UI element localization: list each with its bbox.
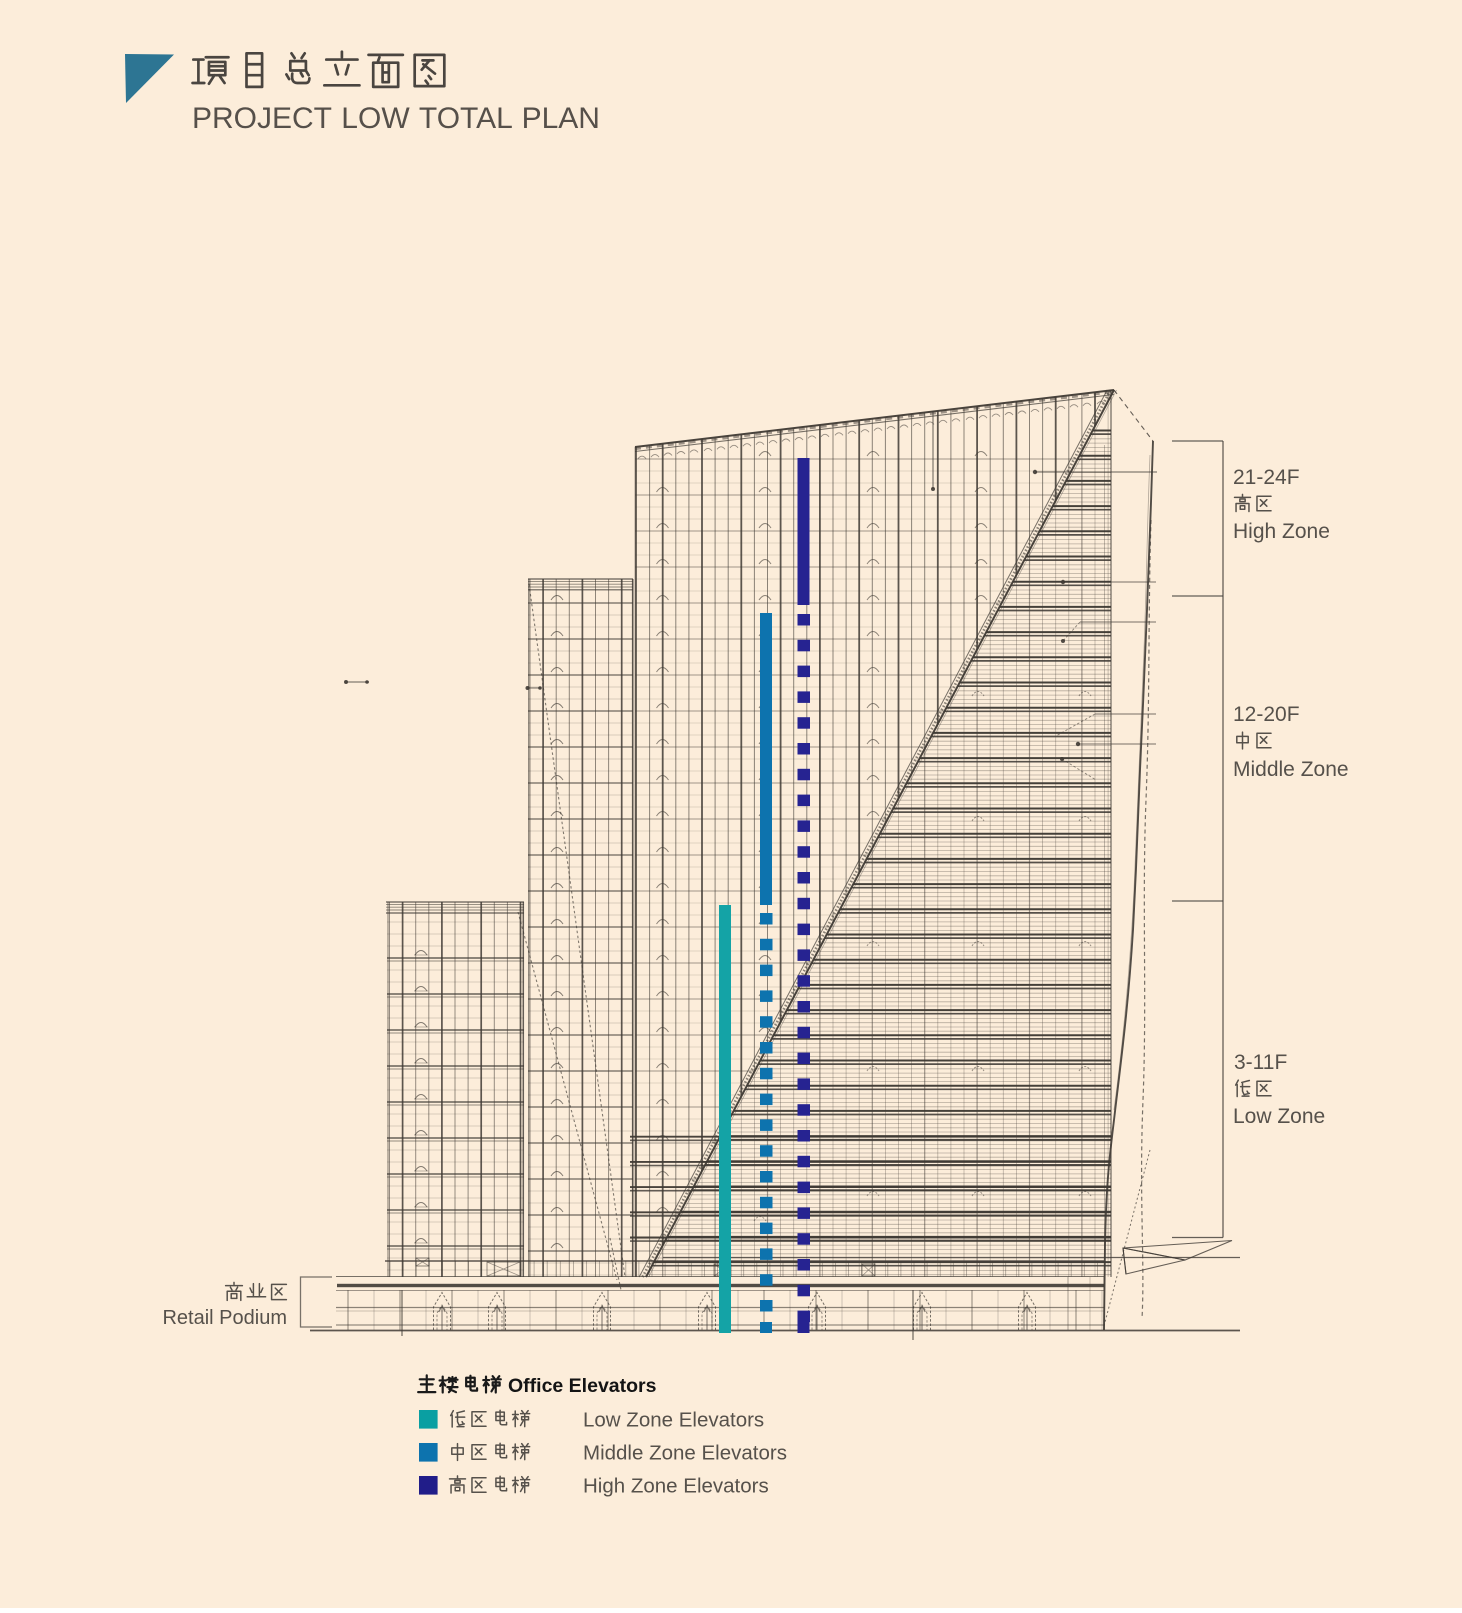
svg-text:12-20F: 12-20F [1233, 703, 1300, 726]
svg-text:PROJECT LOW TOTAL PLAN: PROJECT LOW TOTAL PLAN [192, 102, 600, 135]
svg-text:Low Zone: Low Zone [1233, 1105, 1325, 1128]
svg-text:Office Elevators: Office Elevators [508, 1375, 657, 1397]
svg-text:3-11F: 3-11F [1234, 1051, 1287, 1074]
svg-text:21-24F: 21-24F [1233, 466, 1300, 489]
svg-text:High Zone: High Zone [1233, 520, 1330, 543]
svg-text:High Zone Elevators: High Zone Elevators [583, 1475, 769, 1498]
svg-text:Low Zone Elevators: Low Zone Elevators [583, 1409, 764, 1432]
svg-text:Middle Zone Elevators: Middle Zone Elevators [583, 1442, 787, 1465]
svg-text:Retail Podium: Retail Podium [162, 1307, 287, 1329]
svg-text:Middle Zone: Middle Zone [1233, 758, 1349, 781]
